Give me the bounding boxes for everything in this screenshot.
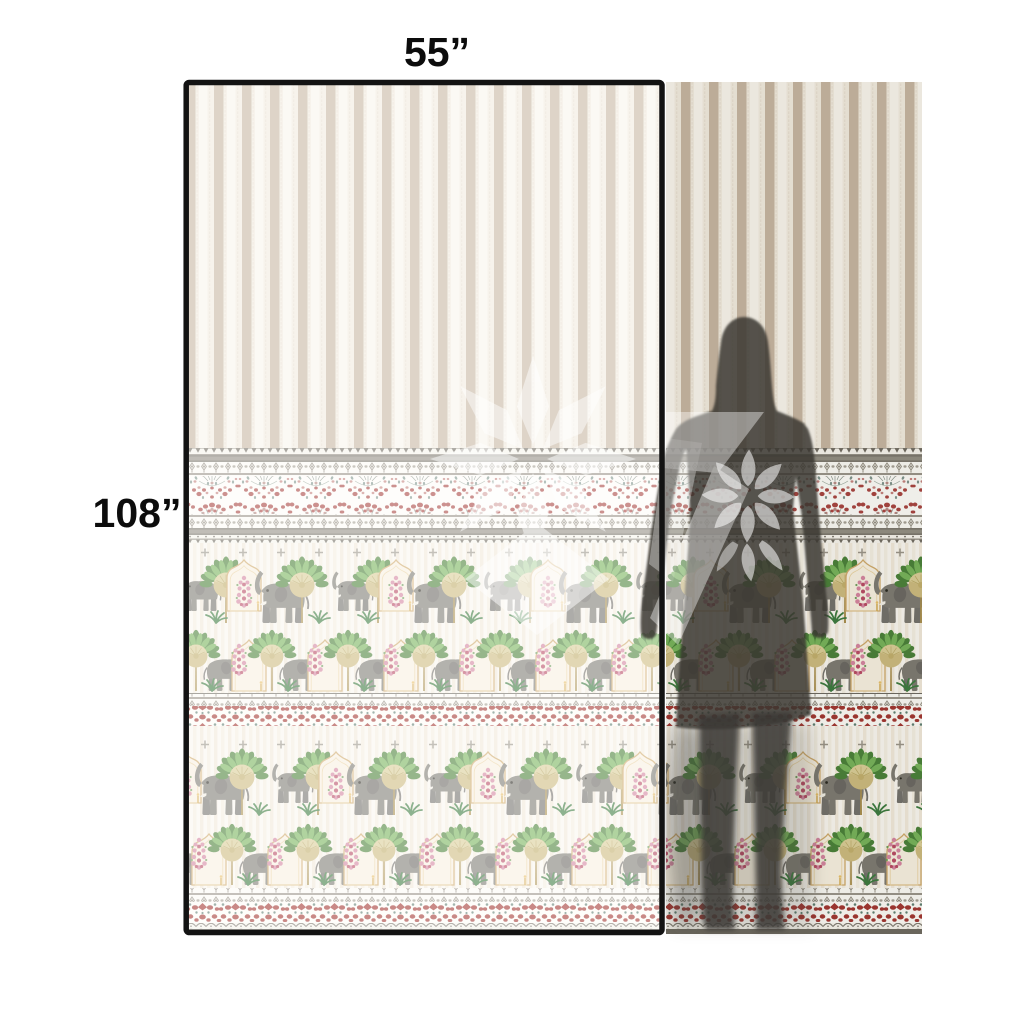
svg-text:55”: 55”: [404, 29, 470, 75]
svg-text:108”: 108”: [93, 490, 182, 536]
